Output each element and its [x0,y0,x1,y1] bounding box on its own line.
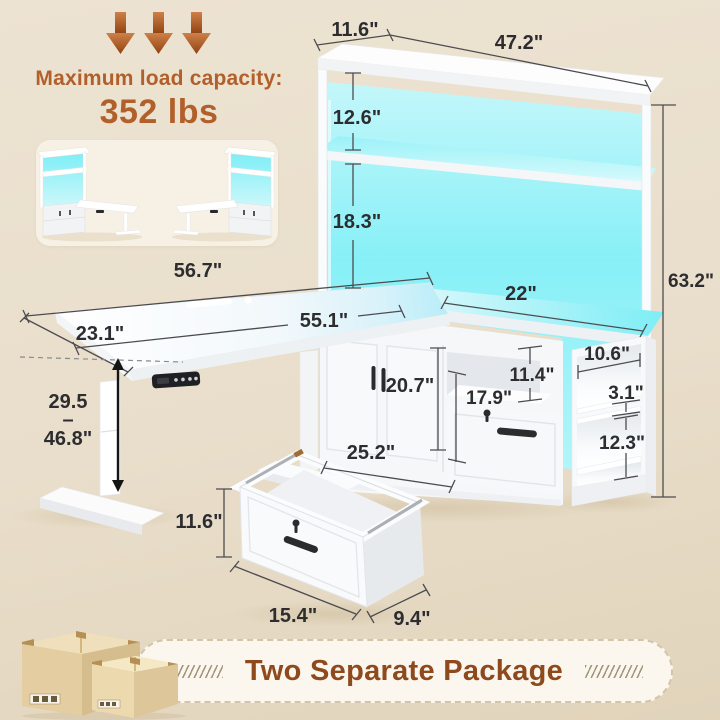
dim-side-shelf-height: 12.3" [599,433,645,454]
led-strip-vertical [328,100,331,296]
dim-drawer-width: 15.4" [269,605,317,627]
dim-file-drawer-height: 17.9" [466,388,512,409]
l-shaped-desk-dimension-diagram: 11.6" 47.2" 12.6" 18.3" 63.2" 56.7" 55.1… [0,0,720,720]
dim-height-max: 46.8" [44,428,92,450]
dim-hutch-depth: 11.6" [331,19,378,41]
dim-side-shelf-depth: 10.6" [584,344,630,365]
dim-desktop-depth: 23.1" [76,323,124,345]
slash-hatch-icon [585,665,643,678]
package-banner-text: Two Separate Package [245,655,563,688]
dim-hutch-width: 47.2" [495,32,543,54]
dim-side-shelf-gap: 3.1" [608,383,643,404]
dim-total-height: 63.2" [668,271,714,292]
dim-bottom-shelf-gap: 18.3" [333,211,381,233]
door-handle [372,366,376,390]
dim-desk-full-length: 56.7" [174,260,222,282]
dim-cabinet-width: 25.2" [347,442,395,464]
dim-desktop-length: 55.1" [300,310,348,332]
dim-door-section-height: 20.7" [386,375,434,397]
dim-top-shelf-gap: 12.6" [333,107,381,129]
package-boxes-icon [14,624,244,720]
file-drawer [447,404,563,495]
dim-cubby-height: 11.4" [510,365,555,386]
dim-drawer-height: 11.6" [175,511,222,533]
dim-return-width: 22" [505,283,537,305]
dim-drawer-depth: 9.4" [393,608,430,630]
small-box-icon [92,656,178,718]
